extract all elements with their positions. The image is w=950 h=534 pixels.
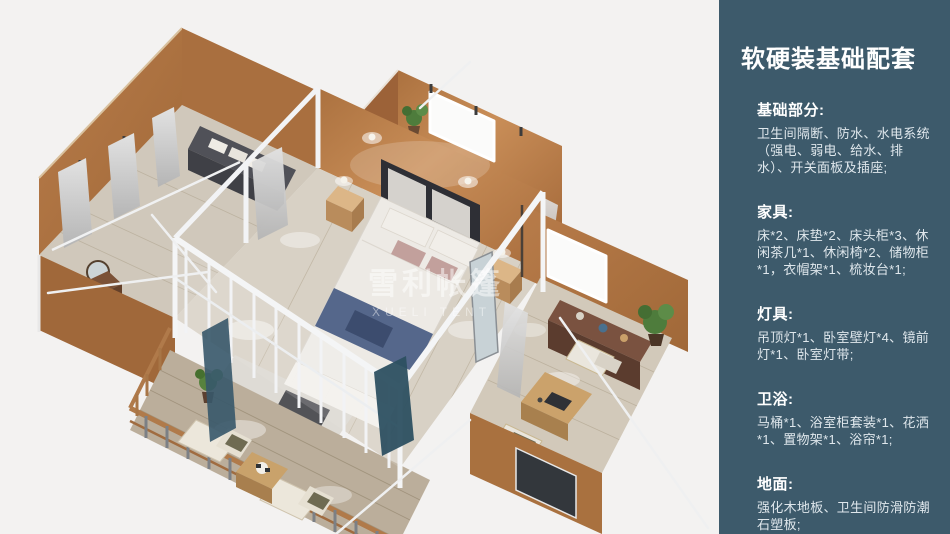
curtain-panel [252,147,288,240]
spec-section: 灯具:吊顶灯*1、卧室壁灯*4、镜前灯*1、卧室灯带; [757,303,933,363]
spec-section: 家具:床*2、床垫*2、床头柜*3、休闲茶几*1、休闲椅*2、储物柜*1，衣帽架… [757,201,933,278]
slide: 雪利帐篷 XUELI TENT 软硬装基础配套 基础部分:卫生间隔断、防水、水电… [0,0,950,534]
spec-heading: 基础部分: [757,99,933,120]
watermark: 雪利帐篷 XUELI TENT [368,268,504,319]
spec-sections: 基础部分:卫生间隔断、防水、水电系统（强电、弱电、给水、排水）、开关面板及插座;… [757,99,933,533]
spec-body: 马桶*1、浴室柜套装*1、花洒*1、置物架*1、浴帘*1; [757,414,933,448]
spec-section: 基础部分:卫生间隔断、防水、水电系统（强电、弱电、给水、排水）、开关面板及插座; [757,99,933,176]
spec-body: 强化木地板、卫生间防滑防潮石塑板; [757,499,933,533]
spec-section: 地面:强化木地板、卫生间防滑防潮石塑板; [757,473,933,533]
spec-body: 吊顶灯*1、卧室壁灯*4、镜前灯*1、卧室灯带; [757,329,933,363]
panel-title: 软硬装基础配套 [741,46,933,74]
watermark-en: XUELI TENT [372,305,491,319]
spec-body: 卫生间隔断、防水、水电系统（强电、弱电、给水、排水）、开关面板及插座; [757,125,933,176]
spec-heading: 家具: [757,201,933,222]
spec-body: 床*2、床垫*2、床头柜*3、休闲茶几*1、休闲椅*2、储物柜*1，衣帽架*1、… [757,227,933,278]
floorplan-3d-illustration: 雪利帐篷 XUELI TENT [0,0,719,534]
spec-section: 卫浴:马桶*1、浴室柜套装*1、花洒*1、置物架*1、浴帘*1; [757,388,933,448]
spec-sidebar: 软硬装基础配套 基础部分:卫生间隔断、防水、水电系统（强电、弱电、给水、排水）、… [719,0,950,534]
floorplan-render: 雪利帐篷 XUELI TENT [0,0,719,534]
spec-heading: 地面: [757,473,933,494]
spec-heading: 灯具: [757,303,933,324]
spec-heading: 卫浴: [757,388,933,409]
watermark-cn: 雪利帐篷 [368,268,504,301]
